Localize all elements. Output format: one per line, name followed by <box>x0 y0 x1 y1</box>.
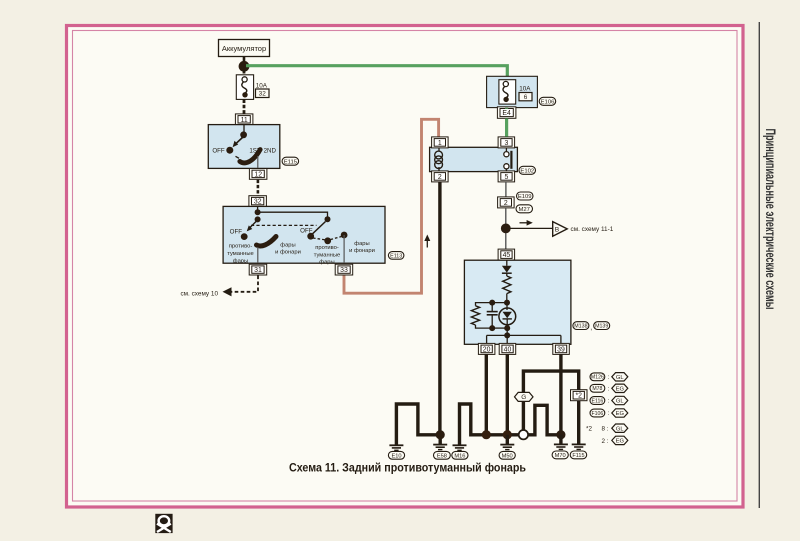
svg-text:GL: GL <box>616 426 625 432</box>
svg-text:2 :: 2 : <box>601 438 608 445</box>
svg-text:М139: М139 <box>595 324 608 330</box>
svg-text:см. схему 11-1: см. схему 11-1 <box>571 226 614 233</box>
svg-text:G: G <box>521 394 526 401</box>
svg-text:см. схему 10: см. схему 10 <box>180 290 218 297</box>
svg-text:39: 39 <box>557 346 565 353</box>
svg-text:32: 32 <box>254 199 262 206</box>
svg-text:противо-: противо- <box>315 245 339 251</box>
svg-text:E113: E113 <box>390 253 402 259</box>
svg-text:10A: 10A <box>519 86 531 93</box>
svg-text:EG: EG <box>616 386 625 392</box>
svg-text:E10: E10 <box>391 453 401 459</box>
svg-text:40: 40 <box>504 346 512 353</box>
svg-text:E109: E109 <box>518 194 532 200</box>
svg-text:11: 11 <box>241 117 248 124</box>
svg-text:1: 1 <box>438 140 442 147</box>
svg-text:Принципиальные электрические с: Принципиальные электрические схемы <box>763 129 778 310</box>
svg-text:фары: фары <box>319 259 334 265</box>
svg-text:В: В <box>555 227 560 234</box>
svg-text:*2: *2 <box>586 426 592 433</box>
svg-text:Аккумулятор: Аккумулятор <box>222 44 266 53</box>
svg-text:*2: *2 <box>575 393 582 400</box>
svg-text:противо-: противо- <box>229 244 253 250</box>
svg-text:12: 12 <box>254 171 262 178</box>
svg-text:фары: фары <box>280 243 295 249</box>
svg-text:туманные: туманные <box>227 251 254 257</box>
svg-text:М138: М138 <box>574 324 587 330</box>
svg-text:6: 6 <box>524 94 528 101</box>
svg-text:Схема 11. Задний противотуманн: Схема 11. Задний противотуманный фонарь <box>289 461 526 475</box>
svg-text:E115: E115 <box>284 159 298 165</box>
svg-text:и фонари: и фонари <box>275 250 301 256</box>
svg-text:2: 2 <box>504 200 508 207</box>
svg-text:45: 45 <box>503 252 511 259</box>
svg-text:20: 20 <box>483 346 491 353</box>
svg-text:33: 33 <box>340 267 348 274</box>
svg-text:туманные: туманные <box>314 252 341 258</box>
svg-text:E58: E58 <box>437 453 447 459</box>
svg-text:GL: GL <box>616 375 625 381</box>
svg-text:GL: GL <box>616 399 625 405</box>
svg-text:М70: М70 <box>555 453 566 459</box>
svg-text:,: , <box>590 325 592 332</box>
svg-text:F106: F106 <box>591 411 603 417</box>
svg-text:М16: М16 <box>454 453 465 459</box>
svg-text:E116: E116 <box>592 398 604 404</box>
svg-text:M27: M27 <box>518 207 529 213</box>
svg-text:фары: фары <box>233 258 248 264</box>
svg-text:M78: M78 <box>592 386 602 392</box>
svg-text:1ST: 1ST <box>249 148 261 155</box>
svg-text:8 :: 8 : <box>601 426 608 433</box>
svg-text:5: 5 <box>504 174 508 181</box>
svg-text:F115: F115 <box>572 453 584 459</box>
svg-text:EG: EG <box>616 411 625 417</box>
svg-text:E102: E102 <box>520 168 534 174</box>
svg-text:EG: EG <box>616 439 625 445</box>
svg-text:32: 32 <box>259 91 267 98</box>
svg-text:и фонари: и фонари <box>349 248 375 254</box>
svg-text:M126: M126 <box>591 375 604 381</box>
svg-text:E4: E4 <box>502 110 511 117</box>
svg-text:фары: фары <box>354 241 369 247</box>
svg-text:OFF: OFF <box>212 148 225 155</box>
svg-text:3: 3 <box>504 140 508 147</box>
svg-text:E106: E106 <box>541 99 555 105</box>
svg-text:31: 31 <box>254 267 262 274</box>
svg-text:OFF: OFF <box>230 229 243 236</box>
svg-text:М50: М50 <box>502 453 513 459</box>
svg-text:2ND: 2ND <box>264 148 277 155</box>
svg-text:2: 2 <box>438 174 442 181</box>
